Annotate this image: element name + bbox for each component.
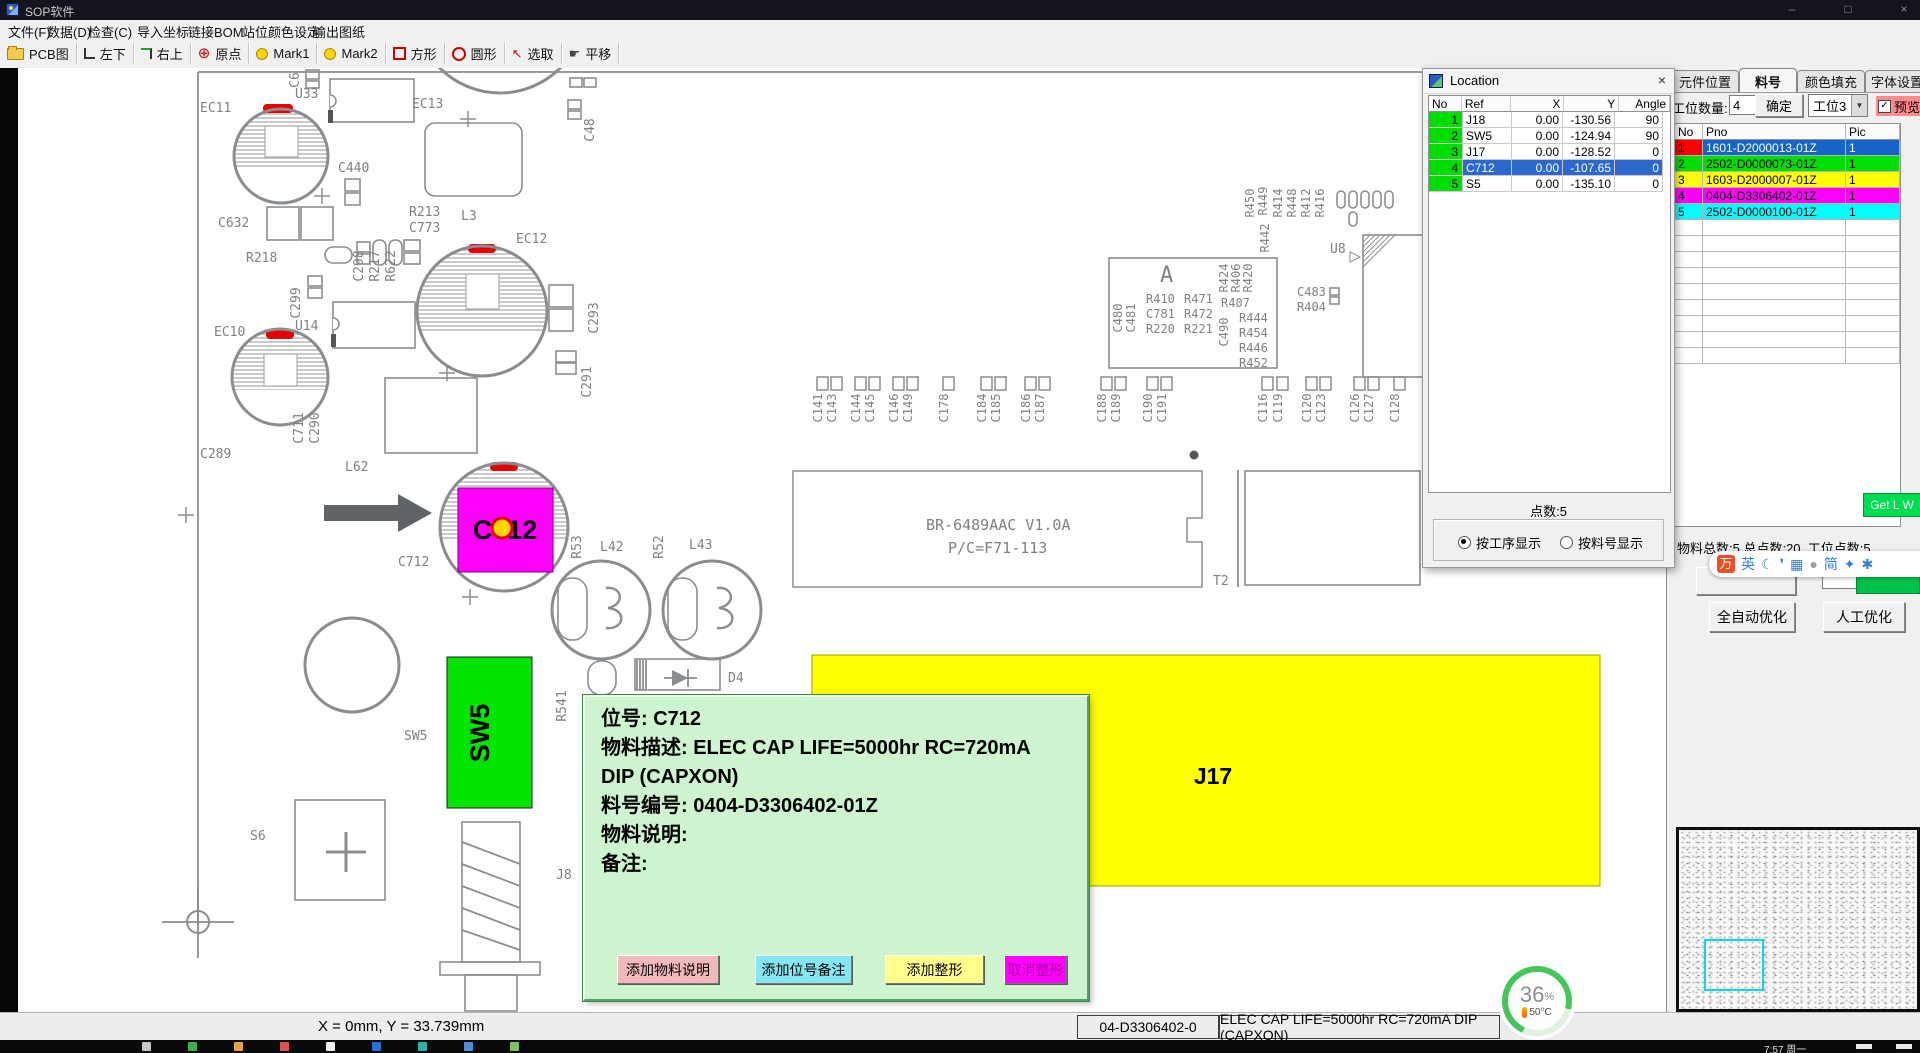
pcb-label: EC13 (412, 97, 443, 112)
keyboard-icon[interactable]: ▦ (1790, 556, 1803, 572)
location-row[interactable]: 5S50.00-135.100 (1429, 176, 1670, 192)
menu-station-color[interactable]: 站位颜色设定 (242, 22, 320, 41)
mark2-dot-icon (324, 48, 336, 60)
pcb-selected-point (492, 518, 512, 538)
mark1-dot-icon (256, 48, 268, 60)
pcb-label: C483 (1297, 285, 1326, 299)
cursor-coordinates: X = 0mm, Y = 33.739mm (318, 1018, 484, 1035)
confirm-button[interactable]: 确定 (1755, 94, 1803, 117)
location-dialog-titlebar[interactable]: Location × (1423, 69, 1674, 94)
location-close-icon[interactable]: × (1658, 72, 1666, 88)
points-count-label: 点数:5 (1423, 501, 1674, 520)
location-row[interactable]: 1J180.00-130.5690 (1429, 112, 1670, 128)
simplified-icon[interactable]: 简 (1824, 556, 1838, 572)
top-right-button[interactable]: 右上 (134, 43, 191, 64)
pcb-label: C291 (580, 366, 595, 397)
tab-color-fill[interactable]: 颜色填充 (1797, 70, 1865, 92)
radio-unselected-icon (1560, 536, 1573, 549)
pcb-label: C187 (1033, 394, 1047, 423)
auto-optimize-button[interactable]: 全自动优化 (1709, 602, 1795, 632)
get-lw-button[interactable]: Get L W (1863, 493, 1920, 517)
close-button[interactable]: × (1884, 2, 1920, 16)
parts-row-empty[interactable] (1675, 236, 1900, 252)
right-panel: 元件位置 料号 颜色填充 字体设置 工位数量: 确定 工位3 ▼ ✓ 预览 No… (1666, 68, 1920, 1012)
punctuation-icon[interactable]: ❜ (1780, 556, 1785, 572)
part-info-text: 位号: C712 物料描述: ELEC CAP LIFE=5000hr RC=7… (601, 705, 1071, 879)
location-dialog-icon (1429, 74, 1443, 88)
part-remark-line: 备注: (601, 850, 1071, 879)
manual-optimize-button[interactable]: 人工优化 (1823, 602, 1905, 632)
menu-import-coords[interactable]: 导入坐标 (137, 22, 189, 41)
pcb-label: R410 (1146, 292, 1175, 306)
parts-row-empty[interactable] (1675, 300, 1900, 316)
toolbar: PCB图 左下 右上 ⊕原点 Mark1 Mark2 方形 圆形 ↖选取 ☛平移 (0, 40, 1920, 69)
mark1-button[interactable]: Mark1 (249, 43, 317, 64)
part-number-line: 料号编号: 0404-D3306402-01Z (601, 792, 1071, 821)
pcb-label: A (1160, 263, 1173, 288)
select-arrow-icon: ↖ (512, 47, 523, 60)
app-icon (6, 3, 19, 16)
tray-item[interactable] (1896, 1044, 1912, 1049)
pcb-label: R452 (1239, 356, 1268, 370)
pcb-label: R218 (246, 251, 277, 266)
performance-monitor-widget[interactable]: 36% 50°C (1502, 966, 1572, 1036)
parts-row-empty[interactable] (1675, 220, 1900, 236)
pcb-label: C781 (1146, 307, 1175, 321)
preview-checkbox-group[interactable]: ✓ 预览 (1876, 96, 1920, 116)
pcb-label: R448 (1285, 189, 1299, 218)
pcb-label: L3 (461, 209, 477, 224)
pcb-label: C146 (887, 394, 901, 423)
square-icon (393, 47, 406, 60)
pcb-label: R52 (652, 535, 667, 558)
menu-output-drawing[interactable]: 输出图纸 (313, 22, 365, 41)
parts-row[interactable]: 52502-D0000100-01Z1 (1675, 204, 1900, 220)
pcb-label: C298 (352, 250, 367, 281)
pcb-label: C290 (308, 412, 323, 443)
taskbar-app-icon[interactable] (326, 1042, 335, 1051)
pcb-label: EC11 (200, 101, 231, 116)
parts-row[interactable]: 31603-D2000007-01Z1 (1675, 172, 1900, 188)
clock-label: 7:57 周一 (1764, 1041, 1806, 1053)
popup-button-2[interactable]: 添加整形 (885, 955, 984, 984)
origin-button[interactable]: ⊕原点 (191, 43, 250, 64)
pcb-label: L62 (345, 460, 368, 475)
parts-table-header: No Pno Pic (1675, 124, 1900, 140)
pcb-label: C127 (1362, 394, 1376, 423)
bottom-left-button[interactable]: 左下 (77, 43, 134, 64)
tab-part-number[interactable]: 料号 (1739, 68, 1797, 93)
pcb-label: R450 (1243, 189, 1257, 218)
chevron-down-icon: ▼ (1851, 95, 1867, 116)
taskbar-app-icon[interactable] (510, 1042, 519, 1051)
part-ref-line: 位号: C712 (601, 705, 1071, 734)
pcb-label: R454 (1239, 326, 1268, 340)
pcb-label: C141 (811, 394, 825, 423)
parts-row[interactable]: 40404-D3306402-01Z1 (1675, 188, 1900, 204)
pcb-label: S6 (250, 829, 266, 844)
location-row[interactable]: 4C7120.00-107.650 (1429, 160, 1670, 176)
pcb-label: D4 (728, 671, 744, 686)
parts-table: No Pno Pic 11601-D2000013-01Z122502-D000… (1674, 123, 1901, 527)
pcb-label: C185 (989, 394, 1003, 423)
rect-tool-button[interactable]: 方形 (386, 43, 445, 64)
pcb-label: U33 (295, 87, 318, 102)
pcb-label: C440 (338, 161, 369, 176)
menu-bar: 文件(F) 数据(D) 检查(C) 导入坐标 链接BOM 站位颜色设定 输出图纸 (0, 20, 1920, 41)
ime-toolbar[interactable]: 万英☾❜▦●简✦✱ (1709, 551, 1920, 577)
preview-checkbox[interactable]: ✓ (1878, 100, 1891, 113)
circle-tool-button[interactable]: 圆形 (445, 43, 505, 64)
popup-button-0[interactable]: 添加物料说明 (617, 955, 719, 984)
pcb-label: R444 (1239, 311, 1268, 325)
pcb-label: R404 (1297, 300, 1326, 314)
popup-button-1[interactable]: 添加位号备注 (755, 955, 852, 984)
pcb-label: C289 (200, 447, 231, 462)
folder-icon (7, 48, 24, 60)
pcb-label: T2 (1213, 574, 1229, 589)
corner-bottom-left-icon (84, 48, 95, 59)
pcb-label: C711 (292, 412, 307, 443)
pcb-label: C299 (289, 287, 304, 318)
english-mode-icon[interactable]: 英 (1741, 556, 1755, 572)
pcb-label: R416 (1313, 189, 1327, 218)
pcb-label: R420 (1241, 264, 1255, 293)
radio-by-part[interactable]: 按料号显示 (1560, 533, 1643, 552)
pcb-label: L42 (600, 540, 623, 555)
ime-logo-icon[interactable]: 万 (1717, 555, 1735, 573)
maximize-button[interactable]: □ (1828, 2, 1868, 16)
parts-row-empty[interactable] (1675, 252, 1900, 268)
pcb-label: C186 (1019, 394, 1033, 423)
temperature-value: 50°C (1529, 1007, 1551, 1018)
part-desc-line1: 物料描述: ELEC CAP LIFE=5000hr RC=720mA (601, 734, 1071, 763)
pcb-label: C143 (825, 394, 839, 423)
taskbar-app-icon[interactable] (188, 1042, 197, 1051)
pcb-label: C123 (1314, 394, 1328, 423)
location-row[interactable]: 3J170.00-128.520 (1429, 144, 1670, 160)
pcb-label: C184 (975, 394, 989, 423)
pcb-label: C632 (218, 216, 249, 231)
canvas-left-strip (0, 68, 18, 1012)
part-info-popup: 位号: C712 物料描述: ELEC CAP LIFE=5000hr RC=7… (583, 695, 1089, 1001)
moon-icon[interactable]: ☾ (1761, 556, 1774, 572)
parts-row-empty[interactable] (1675, 348, 1900, 364)
pcb-label: SW5 (465, 704, 495, 763)
pcb-label: C480 (1111, 304, 1125, 333)
pcb-label: SW5 (404, 729, 427, 744)
tab-divider (1667, 92, 1920, 93)
tab-font-settings[interactable]: 字体设置 (1865, 70, 1920, 92)
location-dialog-title: Location (1450, 73, 1499, 88)
pcb-label: U8 (1330, 242, 1346, 257)
pcb-label: U14 (295, 319, 319, 334)
status-bar: X = 0mm, Y = 33.739mm 04-D3306402-0 ELEC… (0, 1012, 1920, 1041)
pcb-label: C128 (1388, 394, 1402, 423)
pcb-label: R217 (368, 250, 383, 281)
pcb-label: C293 (587, 302, 602, 333)
pcb-label: R220 (1146, 322, 1175, 336)
taskbar-app-icon[interactable] (234, 1042, 243, 1051)
board-minimap[interactable] (1676, 827, 1920, 1012)
circle-icon (452, 47, 466, 61)
pan-tool-button[interactable]: ☛平移 (562, 43, 620, 64)
pcb-label: C712 (398, 555, 429, 570)
pcb-label: R471 (1184, 292, 1213, 306)
pcb-label: C120 (1300, 394, 1314, 423)
corner-top-right-icon (141, 48, 152, 59)
pcb-label: J17 (1194, 763, 1232, 789)
sop-app-window: SOP软件 – □ × 文件(F) 数据(D) 检查(C) 导入坐标 链接BOM… (0, 0, 1920, 1053)
station-select[interactable]: 工位3 ▼ (1808, 94, 1868, 117)
pcb-label: R213 (409, 205, 440, 220)
app-title: SOP软件 (25, 3, 74, 20)
pcb-label: C481 (1124, 304, 1138, 333)
pcb-label: R449 (1256, 187, 1270, 216)
pcb-label: P/C=F71-113 (948, 539, 1047, 557)
pcb-image-button[interactable]: PCB图 (0, 43, 77, 64)
user-icon[interactable]: ● (1809, 556, 1817, 572)
pcb-label: R446 (1239, 341, 1268, 355)
parts-row-empty[interactable] (1675, 316, 1900, 332)
parts-row[interactable]: 11601-D2000013-01Z1 (1675, 140, 1900, 156)
location-table: No Ref X Y Angle 1J180.00-130.56902SW50.… (1428, 95, 1671, 493)
selected-point-marker (492, 518, 512, 538)
radio-by-process[interactable]: 按工序显示 (1458, 533, 1541, 552)
pcb-label: R472 (1184, 307, 1213, 321)
taskbar-app-icon[interactable] (464, 1042, 473, 1051)
pcb-label: R407 (1221, 296, 1250, 310)
tray-item[interactable] (1856, 1044, 1872, 1049)
preview-label: 预览 (1894, 97, 1920, 116)
menu-check[interactable]: 检查(C) (88, 22, 132, 41)
pcb-label: C145 (863, 394, 877, 423)
station-count-label: 工位数量: (1672, 98, 1728, 117)
origin-crosshair-icon: ⊕ (198, 47, 211, 60)
parts-row-empty[interactable] (1675, 332, 1900, 348)
location-table-header: No Ref X Y Angle (1429, 96, 1670, 112)
taskbar-app-icon[interactable] (418, 1042, 427, 1051)
pcb-label: L43 (689, 538, 712, 553)
tab-component-position[interactable]: 元件位置 (1671, 70, 1739, 92)
gear-icon[interactable]: ✱ (1862, 556, 1874, 572)
pcb-label: C773 (409, 221, 440, 236)
pcb-label: EC10 (214, 325, 245, 340)
taskbar-app-icon[interactable] (280, 1042, 289, 1051)
cpu-percent: 36 (1520, 982, 1544, 1007)
display-mode-group: 按工序显示 按料号显示 (1433, 519, 1664, 561)
status-part-number: 04-D3306402-0 (1077, 1015, 1219, 1039)
radio-selected-icon (1458, 536, 1471, 549)
pcb-label: C116 (1256, 394, 1270, 423)
pcb-label: BR-6489AAC V1.0A (926, 516, 1071, 534)
pcb-label: R53 (570, 535, 585, 558)
windows-taskbar[interactable]: 7:57 周一 (0, 1040, 1920, 1053)
pcb-label: R541 (555, 690, 570, 721)
menu-data[interactable]: 数据(D) (47, 22, 91, 41)
menu-link-bom[interactable]: 链接BOM (188, 22, 244, 41)
pcb-label: C191 (1155, 394, 1169, 423)
pcb-label: C48 (583, 118, 598, 141)
pcb-label: R442 (1258, 224, 1272, 253)
pcb-label: C178 (937, 394, 951, 423)
minimize-button[interactable]: – (1772, 2, 1812, 16)
monitor-face: 36% 50°C (1508, 972, 1566, 1030)
pcb-label: R412 (1299, 189, 1313, 218)
pcb-label: C190 (1141, 394, 1155, 423)
parts-row-empty[interactable] (1675, 284, 1900, 300)
station-count-input[interactable] (1729, 95, 1756, 115)
location-row[interactable]: 2SW50.00-124.9490 (1429, 128, 1670, 144)
pcb-label: C149 (901, 394, 915, 423)
pcb-label: C189 (1109, 394, 1123, 423)
menu-file[interactable]: 文件(F) (8, 22, 51, 41)
pcb-label: C6 (288, 72, 303, 88)
pcb-label: EC12 (516, 232, 547, 247)
pcb-label: R414 (1271, 189, 1285, 218)
pcb-label: C188 (1095, 394, 1109, 423)
pcb-label: C119 (1271, 394, 1285, 423)
pcb-label: C126 (1348, 394, 1362, 423)
part-note-line: 物料说明: (601, 821, 1071, 850)
skin-icon[interactable]: ✦ (1844, 556, 1856, 572)
taskbar-app-icon[interactable] (142, 1042, 151, 1051)
pan-hand-icon: ☛ (569, 47, 581, 60)
part-desc-line2: DIP (CAPXON) (601, 763, 1071, 792)
pcb-label: R221 (1184, 322, 1213, 336)
taskbar-app-icon[interactable] (372, 1042, 381, 1051)
status-part-description: ELEC CAP LIFE=5000hr RC=720mA DIP (CAPXO… (1219, 1015, 1500, 1039)
pcb-label: R622 (384, 250, 399, 281)
parts-row[interactable]: 22502-D0000073-01Z1 (1675, 156, 1900, 172)
pcb-label: C144 (849, 394, 863, 423)
pcb-label: C490 (1217, 318, 1231, 347)
minimap-viewport-rect[interactable] (1704, 939, 1764, 991)
title-bar: SOP软件 – □ × (0, 0, 1920, 20)
mark2-button[interactable]: Mark2 (317, 43, 385, 64)
popup-button-3[interactable]: 取消整形 (1004, 955, 1067, 984)
select-tool-button[interactable]: ↖选取 (505, 43, 562, 64)
pcb-label: J8 (556, 868, 572, 883)
parts-row-empty[interactable] (1675, 268, 1900, 284)
thermometer-icon (1522, 1007, 1527, 1018)
location-dialog: Location × No Ref X Y Angle 1J180.00-130… (1422, 68, 1675, 568)
